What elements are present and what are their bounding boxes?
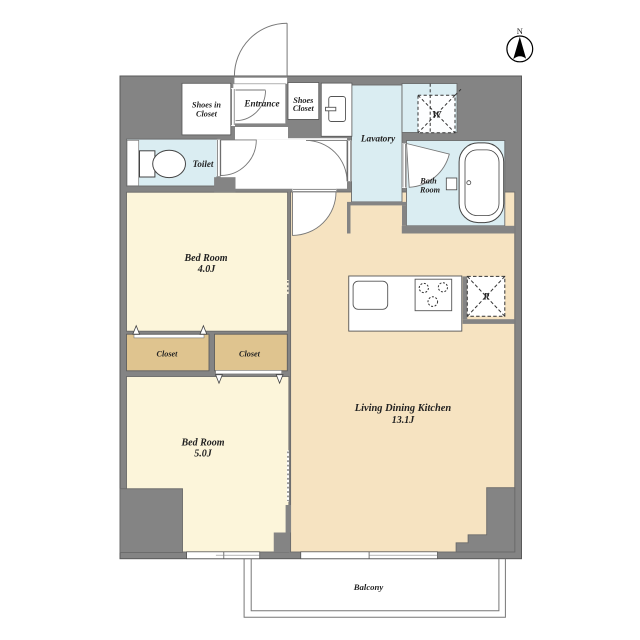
svg-text:5.0J: 5.0J [194,449,213,460]
svg-text:13.1J: 13.1J [392,415,416,426]
svg-text:Bed Room: Bed Room [183,253,227,264]
svg-text:Bath: Bath [419,176,437,185]
svg-text:Closet: Closet [196,110,218,119]
svg-text:Closet: Closet [293,104,315,113]
svg-text:Toilet: Toilet [193,159,214,169]
svg-text:Entrance: Entrance [243,99,279,109]
svg-text:Closet: Closet [239,350,261,359]
svg-text:Bed Room: Bed Room [180,438,224,449]
svg-text:N: N [517,26,523,36]
svg-text:Living Dining Kitchen: Living Dining Kitchen [354,403,452,414]
svg-text:R: R [482,292,489,302]
svg-text:4.0J: 4.0J [197,264,217,275]
svg-text:Lavatory: Lavatory [360,135,396,145]
svg-text:Shoes in: Shoes in [192,100,221,109]
svg-text:Room: Room [419,185,440,194]
svg-text:Balcony: Balcony [353,582,384,592]
svg-text:Closet: Closet [157,350,179,359]
svg-text:W: W [432,110,442,121]
